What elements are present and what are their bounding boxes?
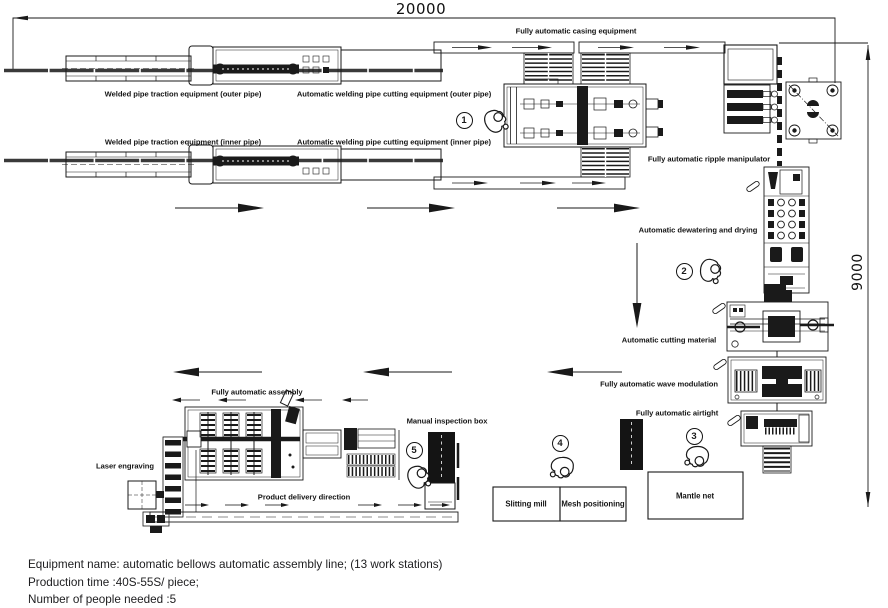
assembly-infeed-arrows	[172, 398, 368, 403]
label-traction-inner: Welded pipe traction equipment (inner pi…	[105, 138, 261, 147]
label-assembly: Fully automatic assembly	[211, 388, 302, 397]
junction-block	[764, 284, 792, 302]
station-badge-2: 2	[676, 263, 693, 280]
laser-engraving-unit	[128, 481, 164, 509]
label-laser-engraving: Laser engraving	[96, 462, 154, 471]
dimension-height-value: 9000	[850, 253, 866, 291]
label-mantle-net: Mantle net	[676, 492, 714, 501]
worker-icon	[406, 464, 432, 491]
conveyor-casing-bottom	[434, 177, 625, 189]
machine-cutting-outer	[189, 46, 441, 85]
worker-icon	[698, 257, 724, 284]
conveyor-casing-top	[434, 42, 725, 53]
machine-cutting-material	[712, 302, 834, 351]
mesh-stock-block	[620, 419, 643, 470]
manual-inspection-unit	[425, 432, 458, 509]
assembly-outfeed-components	[303, 428, 399, 480]
machine-traction-inner	[62, 152, 195, 177]
bolted-plate-fixture	[786, 78, 841, 143]
notes-block: Equipment name: automatic bellows automa…	[28, 556, 442, 608]
note-people-needed: Number of people needed :5	[28, 591, 442, 608]
dimension-width-value: 20000	[396, 0, 446, 18]
label-cutting-material: Automatic cutting material	[622, 336, 716, 345]
flow-arrows-right	[175, 204, 640, 213]
label-cutting-inner: Automatic welding pipe cutting equipment…	[297, 138, 491, 147]
label-dewatering: Automatic dewatering and drying	[639, 226, 758, 235]
machine-ripple-manipulator	[724, 85, 778, 133]
label-slitting-mill: Slitting mill	[505, 500, 546, 509]
factory-layout-diagram: 20000 9000 Fully automatic casing equipm…	[0, 0, 888, 608]
note-production-time: Production time :40S-55S/ piece;	[28, 574, 442, 592]
label-cutting-outer: Automatic welding pipe cutting equipment…	[297, 90, 491, 99]
machine-cutting-inner	[189, 145, 441, 184]
flow-arrow-down	[633, 243, 642, 328]
flow-arrows-left	[173, 368, 622, 377]
casing-receive-box	[724, 45, 777, 84]
station-badge-4: 4	[552, 435, 569, 452]
delivery-conveyor	[150, 450, 458, 522]
label-casing-equipment: Fully automatic casing equipment	[516, 27, 637, 36]
machine-assembly	[163, 390, 303, 480]
delivery-direction-arrows	[185, 503, 450, 507]
machine-casing-central	[488, 79, 663, 147]
machine-airtight	[727, 403, 812, 473]
worker-icon	[684, 445, 709, 469]
label-wave-modulation: Fully automatic wave modulation	[600, 380, 718, 389]
label-delivery-direction: Product delivery direction	[258, 493, 350, 502]
worker-icon	[550, 456, 574, 479]
label-traction-outer: Welded pipe traction equipment (outer pi…	[105, 90, 262, 99]
label-mesh-positioning: Mesh positioning	[561, 500, 624, 509]
station-badge-3: 3	[686, 428, 703, 445]
label-ripple-manipulator: Fully automatic ripple manipulator	[648, 155, 770, 164]
ladder-conveyor	[163, 437, 183, 517]
label-manual-inspection: Manual inspection box	[407, 417, 488, 426]
dimension-20000-line	[13, 16, 835, 83]
machine-traction-outer	[62, 56, 195, 81]
station-badge-5: 5	[406, 442, 423, 459]
label-airtight: Fully automatic airtight	[636, 409, 718, 418]
note-equipment-name: Equipment name: automatic bellows automa…	[28, 556, 442, 574]
station-badge-1: 1	[456, 112, 473, 129]
